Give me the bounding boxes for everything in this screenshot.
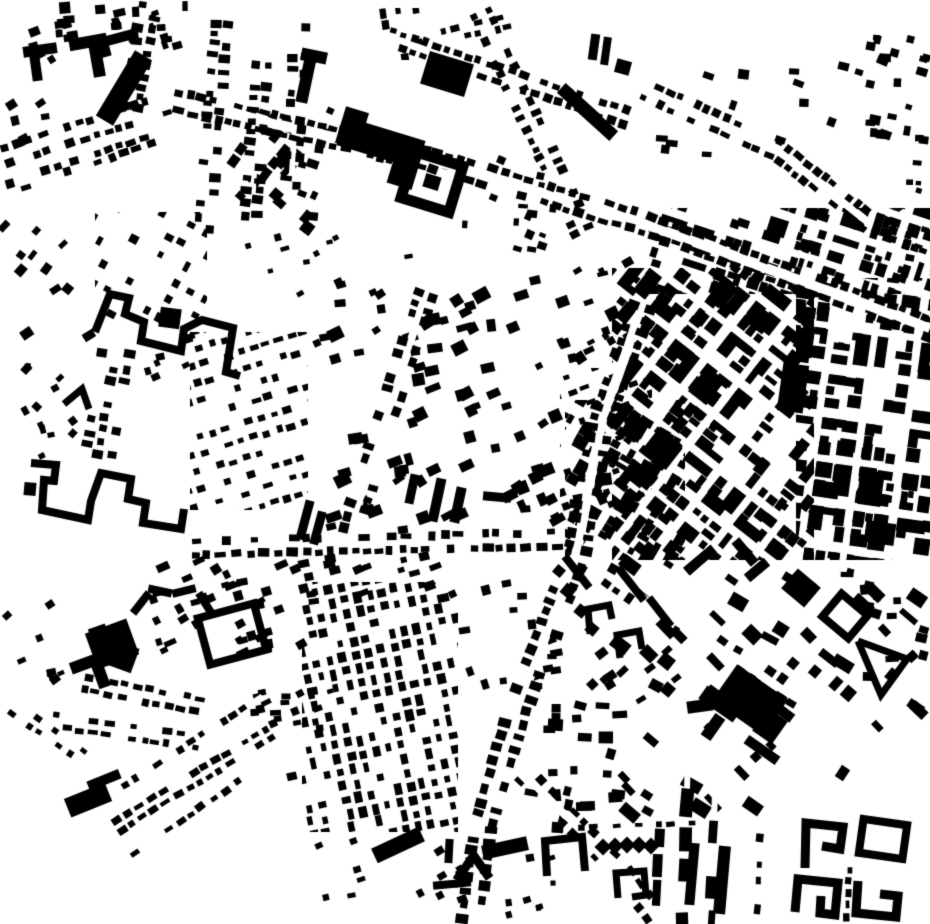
figure-ground-map [0,0,930,924]
building-footprint-canvas [0,0,930,924]
